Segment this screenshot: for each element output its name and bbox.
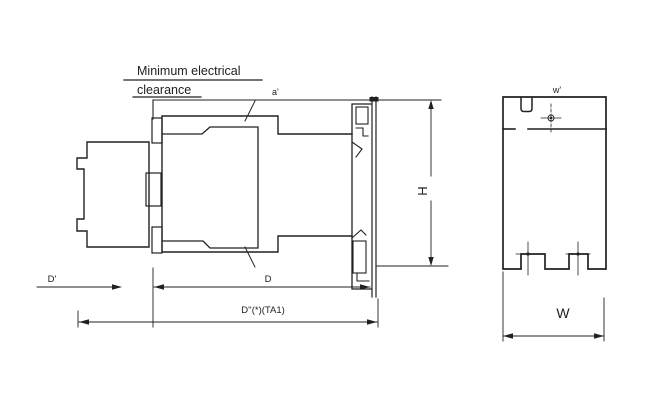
note-clearance: clearance: [137, 83, 191, 97]
center-mark-dot: [576, 252, 579, 255]
dimension-W: W: [503, 272, 604, 341]
bracket-step-notch: [356, 128, 368, 136]
dim-label-D: D: [265, 274, 272, 285]
arrowhead-right-icon: [367, 319, 377, 324]
arrowhead-left-icon: [154, 284, 164, 289]
technical-drawing-page: Minimum electrical clearance a': [0, 0, 650, 408]
dim-label-w-prime: w': [552, 85, 561, 95]
arrowhead-left-icon: [503, 333, 513, 338]
center-mark-dot: [550, 117, 552, 119]
plate-top-cap: [370, 97, 379, 102]
contactor-dimension-drawing: Minimum electrical clearance a': [0, 0, 650, 408]
body-outline: [162, 116, 352, 252]
bracket-hook-bottom: [352, 230, 366, 238]
bracket-bottom-step: [357, 273, 369, 281]
dimension-D: D: [153, 268, 370, 327]
center-mark-dot: [526, 252, 529, 255]
din-rail-bracket: [352, 104, 371, 289]
coil-connector-block: [146, 173, 161, 206]
arrowhead-up-icon: [428, 100, 433, 109]
coil-assembly-outline: [77, 142, 149, 247]
break-slash-top: [245, 101, 255, 121]
dim-label-H: H: [415, 186, 430, 195]
break-slash-bottom: [245, 247, 255, 267]
side-view: Minimum electrical clearance a': [37, 64, 448, 327]
u-slot: [521, 98, 532, 112]
dim-label-a-prime: a': [272, 87, 279, 97]
enclosure-outline: [503, 97, 606, 269]
bracket-outline: [352, 104, 371, 289]
bracket-spring-clip: [353, 241, 366, 273]
dimension-H: H: [377, 100, 448, 266]
bracket-top-cutout: [356, 107, 368, 124]
center-mark-notch-left-icon: [516, 242, 540, 275]
mounting-plate: [370, 97, 379, 297]
terminal-block-bottom: [152, 227, 162, 253]
bracket-hook-top: [352, 142, 362, 157]
arrowhead-right-icon: [112, 284, 122, 289]
arrowhead-right-icon: [594, 333, 604, 338]
dim-label-W: W: [556, 305, 570, 321]
dim-label-D-prime: D': [48, 274, 57, 285]
arrowhead-left-icon: [79, 319, 89, 324]
dimension-D-double-prime: D''(*)(TA1): [78, 299, 378, 327]
terminal-block-top: [152, 118, 162, 143]
dimension-D-prime: D': [37, 274, 122, 290]
dim-label-D-double-prime: D''(*)(TA1): [241, 305, 285, 316]
front-view: w': [503, 85, 606, 341]
body-inner-module: [163, 127, 258, 248]
note-minimum-electrical: Minimum electrical: [137, 64, 241, 78]
arrowhead-down-icon: [428, 257, 433, 266]
